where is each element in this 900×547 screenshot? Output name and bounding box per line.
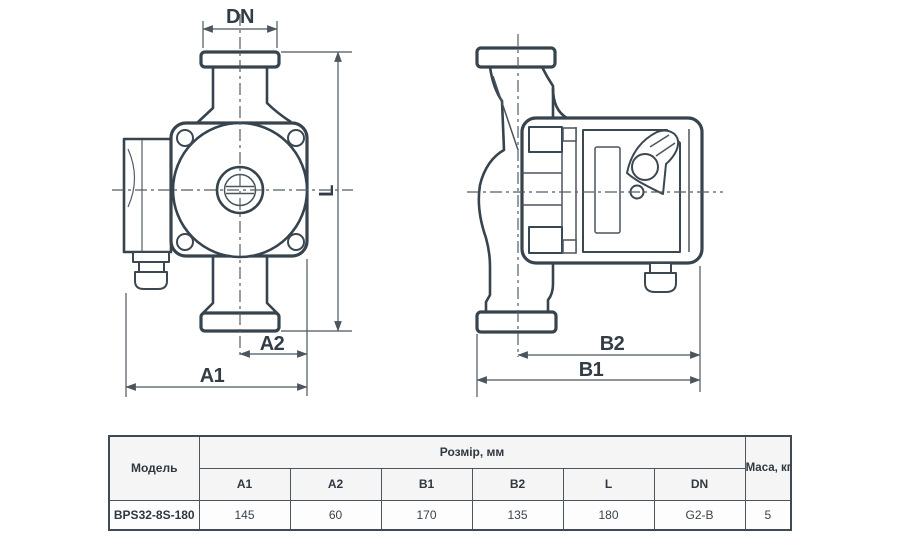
cell-l: 180 [563, 500, 654, 530]
dim-label-l: L [316, 185, 338, 197]
col-header-mass: Маса, кг [745, 436, 791, 500]
top-port-neck-right [267, 66, 291, 122]
col-header-b1: B1 [381, 468, 472, 500]
technical-drawing: DN L A2 A1 [0, 0, 900, 430]
nameplate-slot [595, 147, 620, 233]
table-header-row-2: A1 A2 B1 B2 L DN [109, 468, 791, 500]
dim-label-a1: A1 [200, 365, 225, 387]
col-header-b2: B2 [472, 468, 563, 500]
side-bottom-flange [477, 312, 556, 332]
cell-a1: 145 [199, 500, 290, 530]
col-header-a2: A2 [290, 468, 381, 500]
cell-b2: 135 [472, 500, 563, 530]
col-header-model: Модель [109, 436, 199, 500]
dimensions-table: Модель Розмір, мм Маса, кг A1 A2 B1 B2 L… [108, 435, 792, 531]
top-port-neck [197, 66, 213, 123]
cell-a2: 60 [290, 500, 381, 530]
table-header-row-1: Модель Розмір, мм Маса, кг [109, 436, 791, 468]
col-header-a1: A1 [199, 468, 290, 500]
cable-gland-front [133, 252, 169, 289]
col-header-dn: DN [654, 468, 745, 500]
col-header-l: L [563, 468, 654, 500]
dimension-b1: B1 [477, 334, 700, 397]
cell-mass: 5 [745, 500, 791, 530]
dim-label-a2: A2 [260, 333, 285, 355]
cell-dn: G2-B [654, 500, 745, 530]
pump-dimension-sheet: DN L A2 A1 [0, 0, 900, 547]
cell-b1: 170 [381, 500, 472, 530]
bottom-port-neck-right [267, 257, 277, 313]
table-row: BPS32-8S-180 145 60 170 135 180 G2-B 5 [109, 500, 791, 530]
pipe-housing-joint [553, 88, 567, 118]
pump-side-view: B2 B1 [467, 34, 723, 397]
col-header-size-group: Розмір, мм [199, 436, 745, 468]
pump-front-view: DN L A2 A1 [112, 6, 353, 397]
dim-label-b1: B1 [579, 359, 604, 381]
side-top-flange [477, 48, 555, 67]
cell-model: BPS32-8S-180 [109, 500, 199, 530]
bottom-port-neck [203, 257, 213, 313]
dim-label-b2: B2 [600, 333, 625, 355]
cable-gland-side [645, 263, 676, 292]
